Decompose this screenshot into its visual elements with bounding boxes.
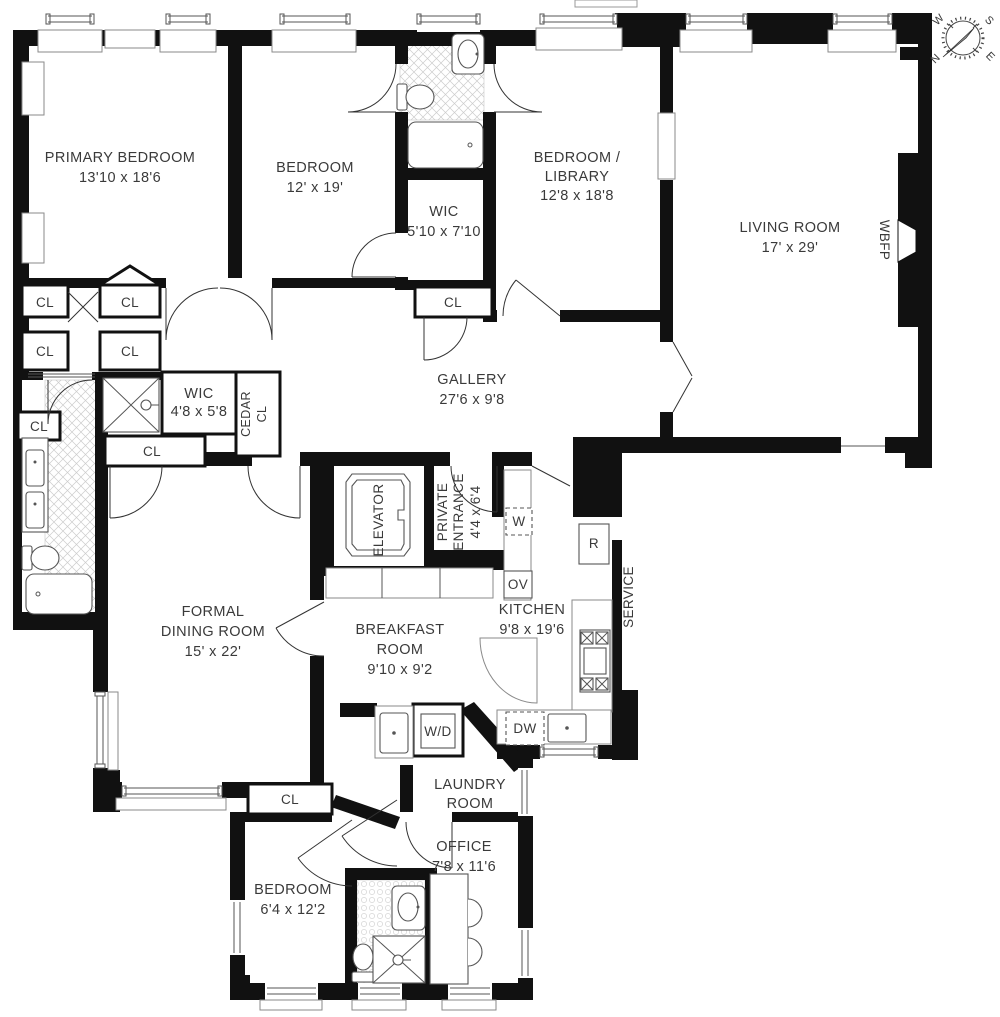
laundry-label: LAUNDRY [434, 777, 506, 793]
bedroom3-label: BEDROOM [254, 882, 332, 898]
wall-recess [22, 62, 44, 115]
stove [580, 630, 610, 692]
wic-mid-label: WIC [184, 386, 213, 402]
vanity [22, 438, 48, 532]
private-entrance-label: PRIVATE [435, 483, 450, 542]
closet-label: CL [121, 344, 139, 359]
washer-dryer-label: W/D [424, 724, 451, 739]
toilet [397, 84, 434, 110]
bathtub [26, 574, 92, 614]
bedroom2-dims: 12' x 19' [287, 180, 344, 196]
window-dining-left [93, 692, 118, 770]
bedroom2-label: BEDROOM [276, 160, 354, 176]
window-laundry-right [518, 768, 533, 816]
closet-label: CL [444, 295, 462, 310]
closet-label: CL [121, 295, 139, 310]
closet-label: CL [30, 419, 48, 434]
radiator-box [160, 30, 216, 52]
library-dims: 12'8 x 18'8 [540, 188, 614, 204]
kitchen-dims: 9'8 x 19'6 [499, 622, 564, 638]
elevator-label: ELEVATOR [371, 484, 386, 557]
gallery-label: GALLERY [437, 372, 506, 388]
bathtub [408, 122, 483, 168]
kitchen-sink [548, 714, 586, 742]
shower [373, 936, 425, 983]
office-dims: 7'8 x 11'6 [432, 859, 496, 875]
living-room-dims: 17' x 29' [762, 240, 819, 256]
wic-top-label: WIC [429, 204, 458, 220]
sink [452, 34, 484, 74]
closet-label: CL [36, 344, 54, 359]
shower [103, 378, 159, 432]
wic-mid-box [162, 372, 236, 434]
toilet [352, 944, 374, 982]
wall-recess [658, 113, 675, 179]
wall-recess [22, 213, 44, 263]
counter [326, 568, 493, 598]
private-entrance-label2: ENTRANCE [451, 473, 466, 550]
radiator-box [828, 30, 896, 52]
primary-bedroom-dims: 13'10 x 18'6 [79, 170, 161, 186]
radiator-box [38, 30, 102, 52]
window-kitchen-bottom [540, 745, 598, 759]
radiator-box [680, 30, 752, 52]
gallery-dims: 27'6 x 9'8 [439, 392, 504, 408]
wic-mid-dims: 4'8 x 5'8 [171, 404, 228, 420]
sink [392, 886, 425, 930]
primary-bedroom-label: PRIMARY BEDROOM [45, 150, 196, 166]
service-label: SERVICE [621, 566, 636, 628]
laundry-sink [375, 706, 413, 758]
wic-top-dims: 5'10 x 7'10 [407, 224, 481, 240]
window-dining-bottom [116, 782, 226, 810]
dining-label2: DINING ROOM [161, 624, 265, 640]
dining-label: FORMAL [182, 604, 245, 620]
library-label: BEDROOM / [534, 150, 621, 166]
office-label: OFFICE [436, 839, 492, 855]
windows-bottom [260, 983, 496, 1010]
window-top-4 [417, 14, 480, 32]
breakfast-label: BREAKFAST [355, 622, 444, 638]
bedroom3-dims: 6'4 x 12'2 [260, 902, 325, 918]
breakfast-dims: 9'10 x 9'2 [367, 662, 432, 678]
laundry-label2: ROOM [447, 796, 494, 812]
closet-label: CL [143, 444, 161, 459]
floor-plan: PRIMARY BEDROOM 13'10 x 18'6 BEDROOM 12'… [0, 0, 1000, 1017]
closet-label: CL [36, 295, 54, 310]
kitchen-label: KITCHEN [499, 602, 565, 618]
radiator-box [272, 30, 356, 52]
closet-label: CL [281, 792, 299, 807]
washer-label: W [512, 514, 525, 529]
floor-plan-page: PRIMARY BEDROOM 13'10 x 18'6 BEDROOM 12'… [0, 0, 1000, 1017]
wall-recess [105, 30, 155, 48]
cedar-closet-label2: CL [255, 406, 269, 423]
toilet [22, 546, 59, 570]
library-label2: LIBRARY [545, 169, 610, 185]
breakfast-label2: ROOM [377, 642, 424, 658]
window-office-right [518, 928, 533, 978]
refrigerator-label: R [589, 536, 599, 551]
cedar-closet-label: CEDAR [239, 391, 253, 437]
private-entrance-dims: 4'4 x 6'4 [468, 485, 483, 538]
dishwasher-label: DW [513, 721, 536, 736]
fireplace-label: WBFP [877, 220, 892, 261]
dining-dims: 15' x 22' [185, 644, 242, 660]
living-room-label: LIVING ROOM [739, 220, 840, 236]
radiator-box [536, 28, 622, 50]
window-bedroom3-left [230, 900, 245, 955]
oven-label: OV [508, 577, 528, 592]
